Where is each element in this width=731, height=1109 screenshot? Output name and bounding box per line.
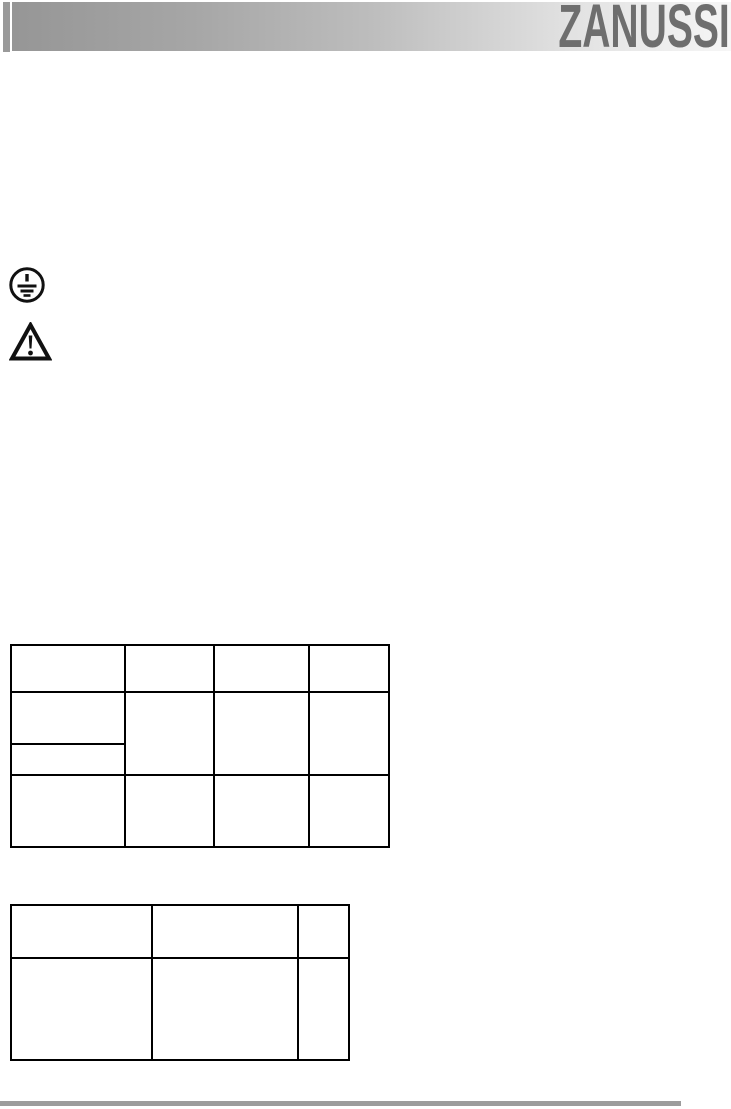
table-row [11, 905, 349, 958]
table-cell [298, 958, 349, 1060]
table-cell [298, 905, 349, 958]
zanussi-logo: ZANUSSI [559, 2, 730, 51]
table-cell [309, 645, 389, 692]
dimensions-table [10, 904, 350, 1061]
table-cell [214, 775, 309, 847]
footer-rule [0, 1101, 681, 1106]
table-cell [214, 692, 309, 775]
table-row [11, 692, 389, 744]
table-cell [152, 905, 298, 958]
table-cell [309, 775, 389, 847]
table-cell [152, 958, 298, 1060]
table-cell [11, 958, 152, 1060]
table-cell [125, 775, 214, 847]
table-cell [11, 775, 125, 847]
table-cell [214, 645, 309, 692]
table-row [11, 645, 389, 692]
table-row [11, 958, 349, 1060]
table-cell [125, 645, 214, 692]
table-cell [11, 905, 152, 958]
earth-ground-icon [8, 266, 46, 304]
table-cell [11, 692, 125, 744]
table-cell [309, 692, 389, 775]
header-accent-bar [3, 2, 10, 52]
table-cell [11, 645, 125, 692]
table-cell [11, 744, 125, 775]
table-cell [125, 692, 214, 775]
warning-triangle-icon [9, 322, 52, 362]
manual-page: ZANUSSI [0, 0, 731, 1109]
table-row [11, 775, 389, 847]
ratings-table [10, 644, 390, 848]
